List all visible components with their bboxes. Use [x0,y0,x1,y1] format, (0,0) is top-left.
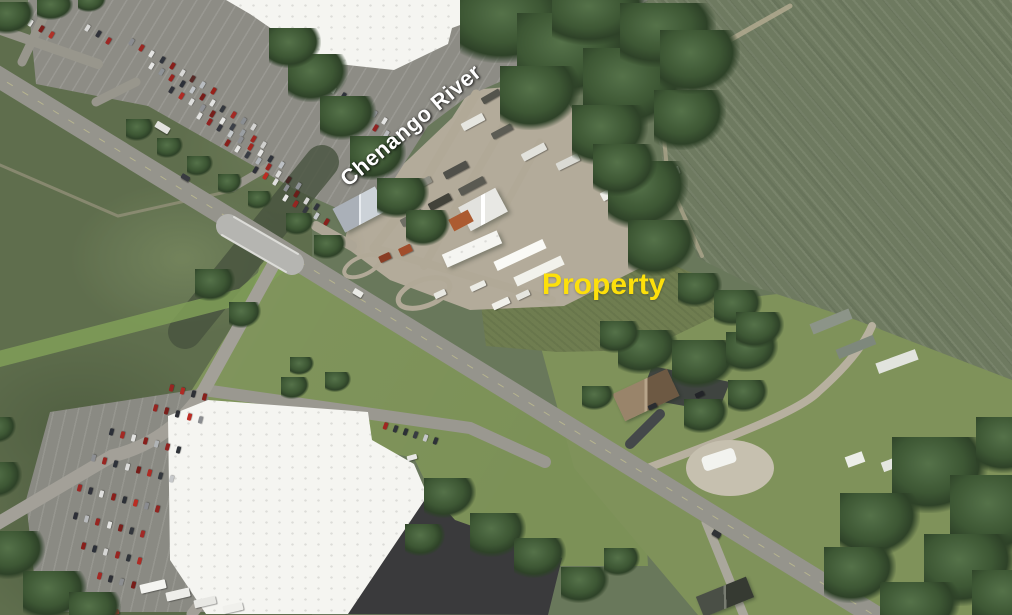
property-label: Property [542,268,665,302]
tree [582,386,614,410]
tree [229,302,261,328]
tree [976,417,1012,473]
tree [126,119,154,141]
tree [157,138,183,158]
tree [248,191,272,209]
tree [187,156,213,176]
tree [0,462,22,498]
tree [406,210,450,246]
house-drive [630,414,660,444]
tree [325,372,351,392]
tree [69,592,121,615]
tree [514,538,566,578]
tree [500,66,580,130]
tree [600,321,640,353]
dirt-ring [341,250,383,282]
tree [78,0,106,12]
tree [218,174,242,194]
tree [654,90,726,150]
tree [880,582,960,615]
tree [405,524,445,556]
tree [736,312,784,348]
tree [314,235,346,259]
aerial-map: Chenango River Property [0,0,1012,615]
tree [593,144,657,196]
tree [286,213,314,235]
tree [195,269,235,301]
tree [37,0,73,20]
tree [561,567,609,603]
tree [320,96,376,140]
tree [0,2,34,34]
tree [972,570,1012,615]
tree [728,380,768,412]
tree [0,417,16,443]
tree [684,399,728,433]
tree [604,548,640,576]
tree [281,377,309,399]
tree [424,478,476,518]
lot-entrance [96,82,136,102]
tree [269,28,321,68]
tree [660,30,740,94]
tree [290,357,314,375]
